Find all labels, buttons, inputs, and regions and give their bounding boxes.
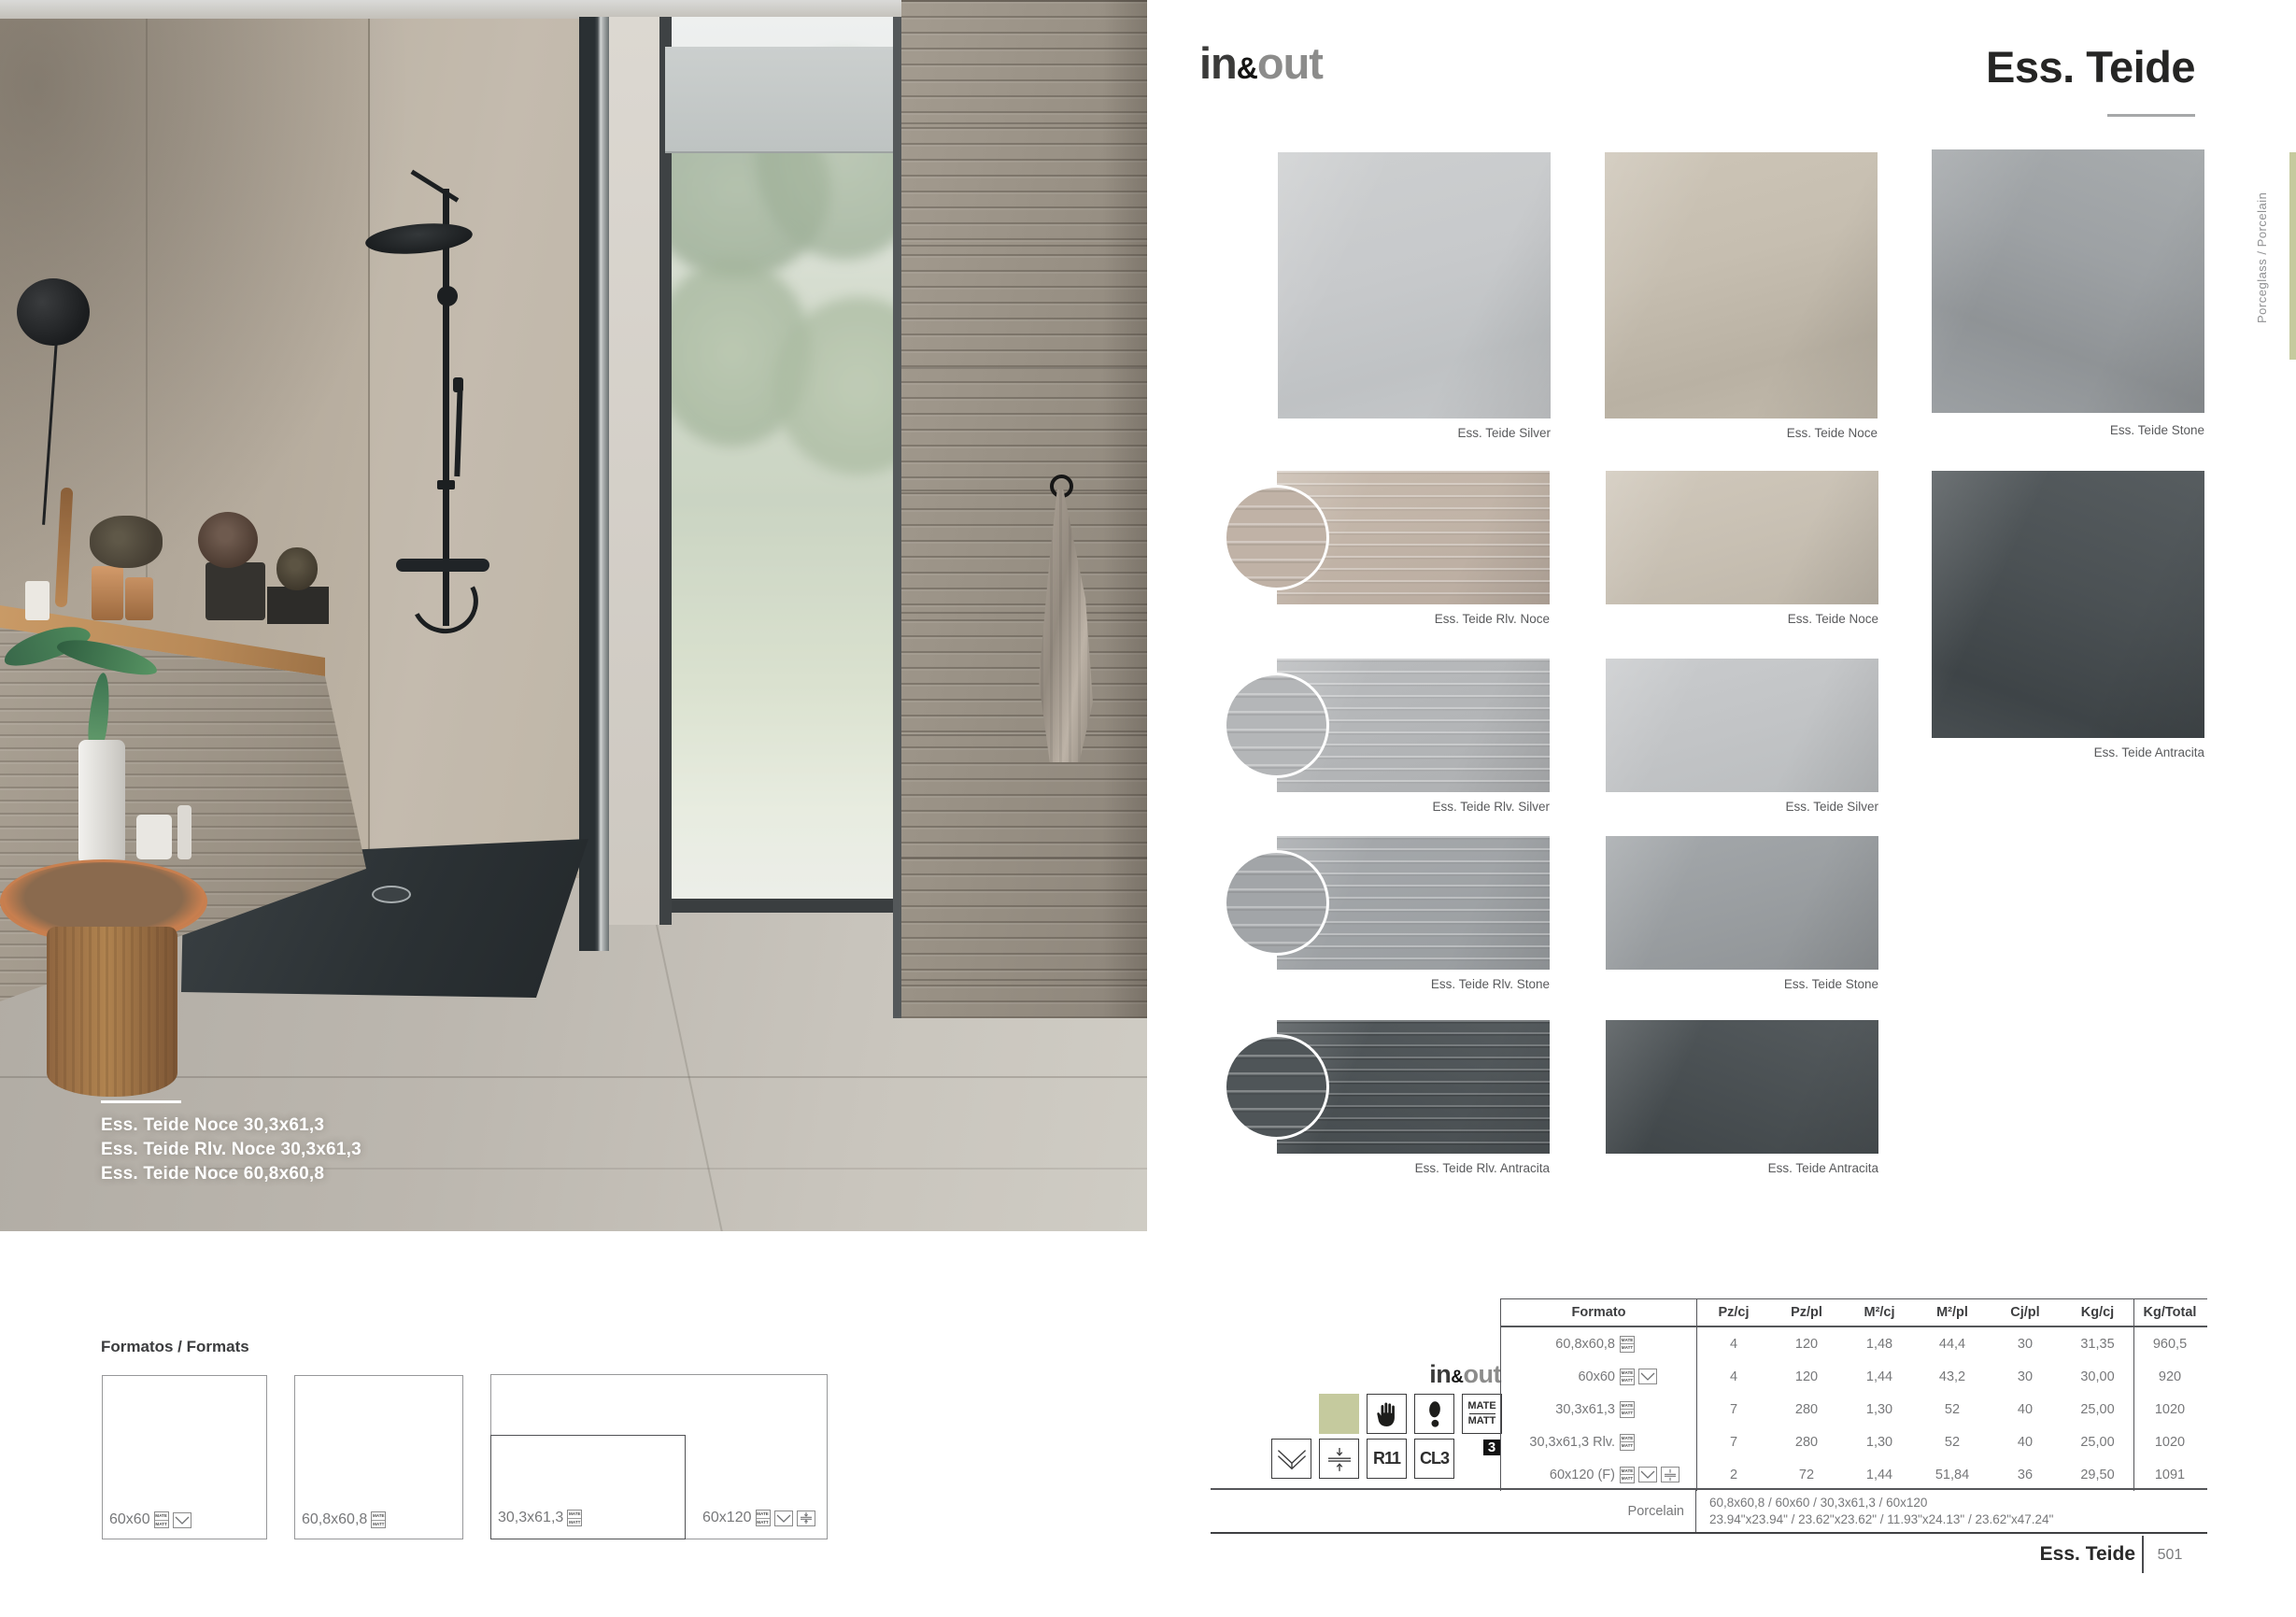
detail-zoom-circle [1224, 485, 1329, 590]
tile-swatch-relief [1277, 1020, 1550, 1154]
col-header: Kg/cj [2062, 1299, 2134, 1326]
caption-rule [101, 1100, 181, 1103]
caption-line: Ess. Teide Noce 60,8x60,8 [101, 1162, 361, 1186]
cell: 7 [1697, 1402, 1770, 1417]
class-rating-badge: CL3 [1414, 1439, 1454, 1479]
cell: 120 [1770, 1337, 1843, 1352]
window-frame [672, 899, 899, 913]
shade-variation-icon [1638, 1369, 1657, 1384]
logo-in: in [1199, 38, 1237, 88]
candle [25, 581, 50, 620]
shower-bracket [437, 286, 458, 306]
cell: 280 [1770, 1435, 1843, 1450]
ribbed-wall-shadow [1102, 0, 1147, 1018]
tile-label: Ess. Teide Rlv. Silver [1277, 800, 1550, 814]
title-underline [2107, 114, 2195, 117]
tile-swatch [1278, 152, 1551, 418]
format-label: 60,8x60,8 MATEMATT [302, 1511, 386, 1528]
cell: 40 [1989, 1402, 2062, 1417]
tile-label: Ess. Teide Silver [1606, 800, 1878, 814]
cell: 25,00 [2062, 1426, 2134, 1458]
logo-ampersand: & [1237, 51, 1257, 85]
catalog-page: Ess. Teide Noce 30,3x61,3 Ess. Teide Rlv… [0, 0, 2296, 1617]
succulent-plant [90, 516, 163, 568]
vase [78, 740, 125, 867]
thickness-grid-icon: 3 [1462, 1439, 1502, 1479]
table-row: 30,3x61,3 MATEMATT 7 280 1,30 52 40 25,0… [1501, 1393, 2207, 1426]
cosmetic-tube [177, 805, 191, 859]
format-label: 60x120 MATEMATT [702, 1510, 815, 1526]
wall-floor-icon [1271, 1439, 1311, 1479]
side-accent-bar [2289, 152, 2296, 360]
cell: 1,44 [1843, 1468, 1916, 1482]
matte-icon: MATEMATT [1620, 1336, 1635, 1353]
col-header: Cj/pl [1989, 1305, 2062, 1320]
format-cell: 30,3x61,3 [1501, 1402, 1615, 1417]
brand-logo: in&out [1199, 37, 1323, 89]
photo-shower-wall [370, 17, 609, 873]
detail-zoom-circle [1224, 850, 1329, 956]
format-size: 30,3x61,3 [498, 1510, 563, 1526]
cell: 25,00 [2062, 1393, 2134, 1426]
cell: 30,00 [2062, 1360, 2134, 1393]
cell: 72 [1770, 1468, 1843, 1482]
tile-swatch [1605, 152, 1878, 418]
tile-label: Ess. Teide Rlv. Stone [1277, 977, 1550, 991]
cell: 52 [1916, 1435, 1989, 1450]
col-header: Kg/Total [2134, 1305, 2205, 1320]
plant-pot [206, 562, 265, 620]
succulent-plant [198, 512, 258, 568]
page-title: Ess. Teide [1986, 41, 2195, 92]
format-size: 60x120 [702, 1510, 752, 1526]
cell: 36 [1989, 1468, 2062, 1482]
col-header: Formato [1501, 1299, 1697, 1326]
material-label: Porcelain [1211, 1490, 1696, 1532]
format-cell: 60x120 (F) [1501, 1468, 1615, 1482]
shower-clamp [437, 480, 455, 489]
format-size: 60x60 [109, 1511, 150, 1528]
format-cell: 60,8x60,8 [1501, 1337, 1615, 1352]
legend-brand-logo: in&out [1369, 1360, 1501, 1389]
window-side-wall [609, 17, 661, 925]
material-row: Porcelain 60,8x60,8 / 60x60 / 30,3x61,3 … [1211, 1488, 2207, 1534]
wall-lamp [17, 278, 90, 346]
col-header: Pz/pl [1770, 1305, 1843, 1320]
cell: 920 [2134, 1369, 2205, 1384]
cell: 7 [1697, 1435, 1770, 1450]
shade-variation-icon [173, 1512, 191, 1528]
copper-pot [125, 577, 153, 620]
cell: 29,50 [2062, 1458, 2134, 1491]
caption-line: Ess. Teide Noce 30,3x61,3 [101, 1113, 361, 1138]
rectified-icon [1319, 1439, 1359, 1479]
cell: 1,48 [1843, 1337, 1916, 1352]
collection-color-swatch [1319, 1394, 1359, 1434]
format-label: 30,3x61,3 MATEMATT [498, 1510, 582, 1526]
jar [136, 815, 172, 859]
tile-swatch-relief [1277, 471, 1550, 604]
mate-matt-icon: MATEMATT [1462, 1394, 1502, 1434]
cell: 2 [1697, 1468, 1770, 1482]
cell: 280 [1770, 1402, 1843, 1417]
hand-shower-head [453, 377, 463, 392]
photo-caption: Ess. Teide Noce 30,3x61,3 Ess. Teide Rlv… [101, 1100, 361, 1186]
tile-swatch [1606, 1020, 1878, 1154]
spec-table: Formato Pz/cj Pz/pl M²/cj M²/pl Cj/pl Kg… [1500, 1298, 2207, 1491]
copper-pot [92, 566, 123, 620]
matte-icon: MATEMATT [1620, 1434, 1635, 1451]
footer-page-number: 501 [2149, 1547, 2190, 1564]
footer-divider [2142, 1536, 2144, 1573]
slip-rating-badge: R11 [1367, 1439, 1407, 1479]
tile-label: Ess. Teide Stone [1932, 423, 2204, 437]
matte-icon: MATEMATT [1620, 1369, 1635, 1385]
cell: 30 [1989, 1337, 2062, 1352]
matte-icon: MATEMATT [567, 1510, 582, 1526]
table-row: 60,8x60,8 MATEMATT 4 120 1,48 44,4 30 31… [1501, 1327, 2207, 1360]
col-header: M²/cj [1843, 1305, 1916, 1320]
footer-collection-name: Ess. Teide [2040, 1543, 2135, 1566]
tile-swatch [1606, 836, 1878, 970]
caption-line: Ess. Teide Rlv. Noce 30,3x61,3 [101, 1138, 361, 1162]
succulent-plant [276, 547, 318, 590]
format-cell: 30,3x61,3 Rlv. [1501, 1435, 1615, 1450]
tile-swatch [1932, 149, 2204, 413]
cell: 4 [1697, 1337, 1770, 1352]
logo-out: out [1257, 38, 1323, 88]
cell: 1,30 [1843, 1402, 1916, 1417]
tile-swatch [1606, 471, 1878, 604]
tile-label: Ess. Teide Silver [1278, 426, 1551, 440]
matte-icon: MATEMATT [154, 1511, 169, 1528]
tile-swatch-relief [1277, 836, 1550, 970]
formats-heading: Formatos / Formats [101, 1338, 249, 1356]
tile-label: Ess. Teide Antracita [1606, 1161, 1878, 1175]
cell: 52 [1916, 1402, 1989, 1417]
roller-shade [665, 47, 899, 153]
side-category-label: Porceglass / Porcelain [2255, 168, 2269, 348]
tile-label: Ess. Teide Stone [1606, 977, 1878, 991]
matte-icon: MATEMATT [1620, 1401, 1635, 1418]
shade-variation-icon [774, 1511, 793, 1526]
tile-label: Ess. Teide Noce [1606, 612, 1878, 626]
format-cell: 60x60 [1501, 1369, 1615, 1384]
glass-panel-edge [579, 17, 609, 951]
table-row: 60x60 MATEMATT 4 120 1,44 43,2 30 30,00 … [1501, 1360, 2207, 1393]
shower-drain [372, 886, 411, 903]
format-label: 60x60 MATEMATT [109, 1511, 191, 1528]
shade-variation-icon [1638, 1467, 1657, 1482]
format-size: 60,8x60,8 [302, 1511, 367, 1528]
tile-swatch-relief [1277, 659, 1550, 792]
matte-icon: MATEMATT [1620, 1467, 1635, 1483]
tile-label: Ess. Teide Rlv. Noce [1277, 612, 1550, 626]
footprint-icon [1414, 1394, 1454, 1434]
col-header: M²/pl [1916, 1305, 1989, 1320]
sizes-inches: 23.94"x23.94" / 23.62"x23.62" / 11.93"x2… [1709, 1511, 2053, 1528]
table-row: 30,3x61,3 Rlv. MATEMATT 7 280 1,30 52 40… [1501, 1426, 2207, 1458]
tile-swatch [1932, 471, 2204, 738]
cell: 30 [1989, 1369, 2062, 1384]
cell: 1091 [2134, 1468, 2205, 1482]
cell: 1020 [2134, 1435, 2205, 1450]
cell: 43,2 [1916, 1369, 1989, 1384]
hand-icon [1367, 1394, 1407, 1434]
side-table [47, 927, 177, 1097]
detail-zoom-circle [1224, 673, 1329, 778]
cell: 960,5 [2134, 1337, 2205, 1352]
matte-icon: MATEMATT [756, 1510, 771, 1526]
cell: 4 [1697, 1369, 1770, 1384]
tile-label: Ess. Teide Rlv. Antracita [1277, 1161, 1550, 1175]
rectified-icon [1661, 1467, 1679, 1482]
cell: 1020 [2134, 1402, 2205, 1417]
cell: 31,35 [2062, 1327, 2134, 1360]
cell: 1,44 [1843, 1369, 1916, 1384]
detail-zoom-circle [1224, 1034, 1329, 1140]
wall-joint [368, 17, 370, 873]
matte-icon: MATEMATT [371, 1511, 386, 1528]
cell: 51,84 [1916, 1468, 1989, 1482]
rectified-icon [797, 1511, 815, 1526]
bathroom-photo: Ess. Teide Noce 30,3x61,3 Ess. Teide Rlv… [0, 0, 1147, 1231]
cell: 44,4 [1916, 1337, 1989, 1352]
material-sizes: 60,8x60,8 / 60x60 / 30,3x61,3 / 60x120 2… [1696, 1490, 2053, 1532]
table-row: 60x120 (F) MATEMATT 2 72 1,44 51,84 36 2… [1501, 1458, 2207, 1491]
cell: 40 [1989, 1435, 2062, 1450]
tile-swatch [1606, 659, 1878, 792]
cell: 120 [1770, 1369, 1843, 1384]
table-header-row: Formato Pz/cj Pz/pl M²/cj M²/pl Cj/pl Kg… [1501, 1299, 2207, 1327]
sizes-cm: 60,8x60,8 / 60x60 / 30,3x61,3 / 60x120 [1709, 1495, 2053, 1511]
tile-label: Ess. Teide Antracita [1932, 745, 2204, 759]
plant-pot [267, 587, 329, 624]
tile-label: Ess. Teide Noce [1605, 426, 1878, 440]
cell: 1,30 [1843, 1435, 1916, 1450]
col-header: Pz/cj [1697, 1305, 1770, 1320]
